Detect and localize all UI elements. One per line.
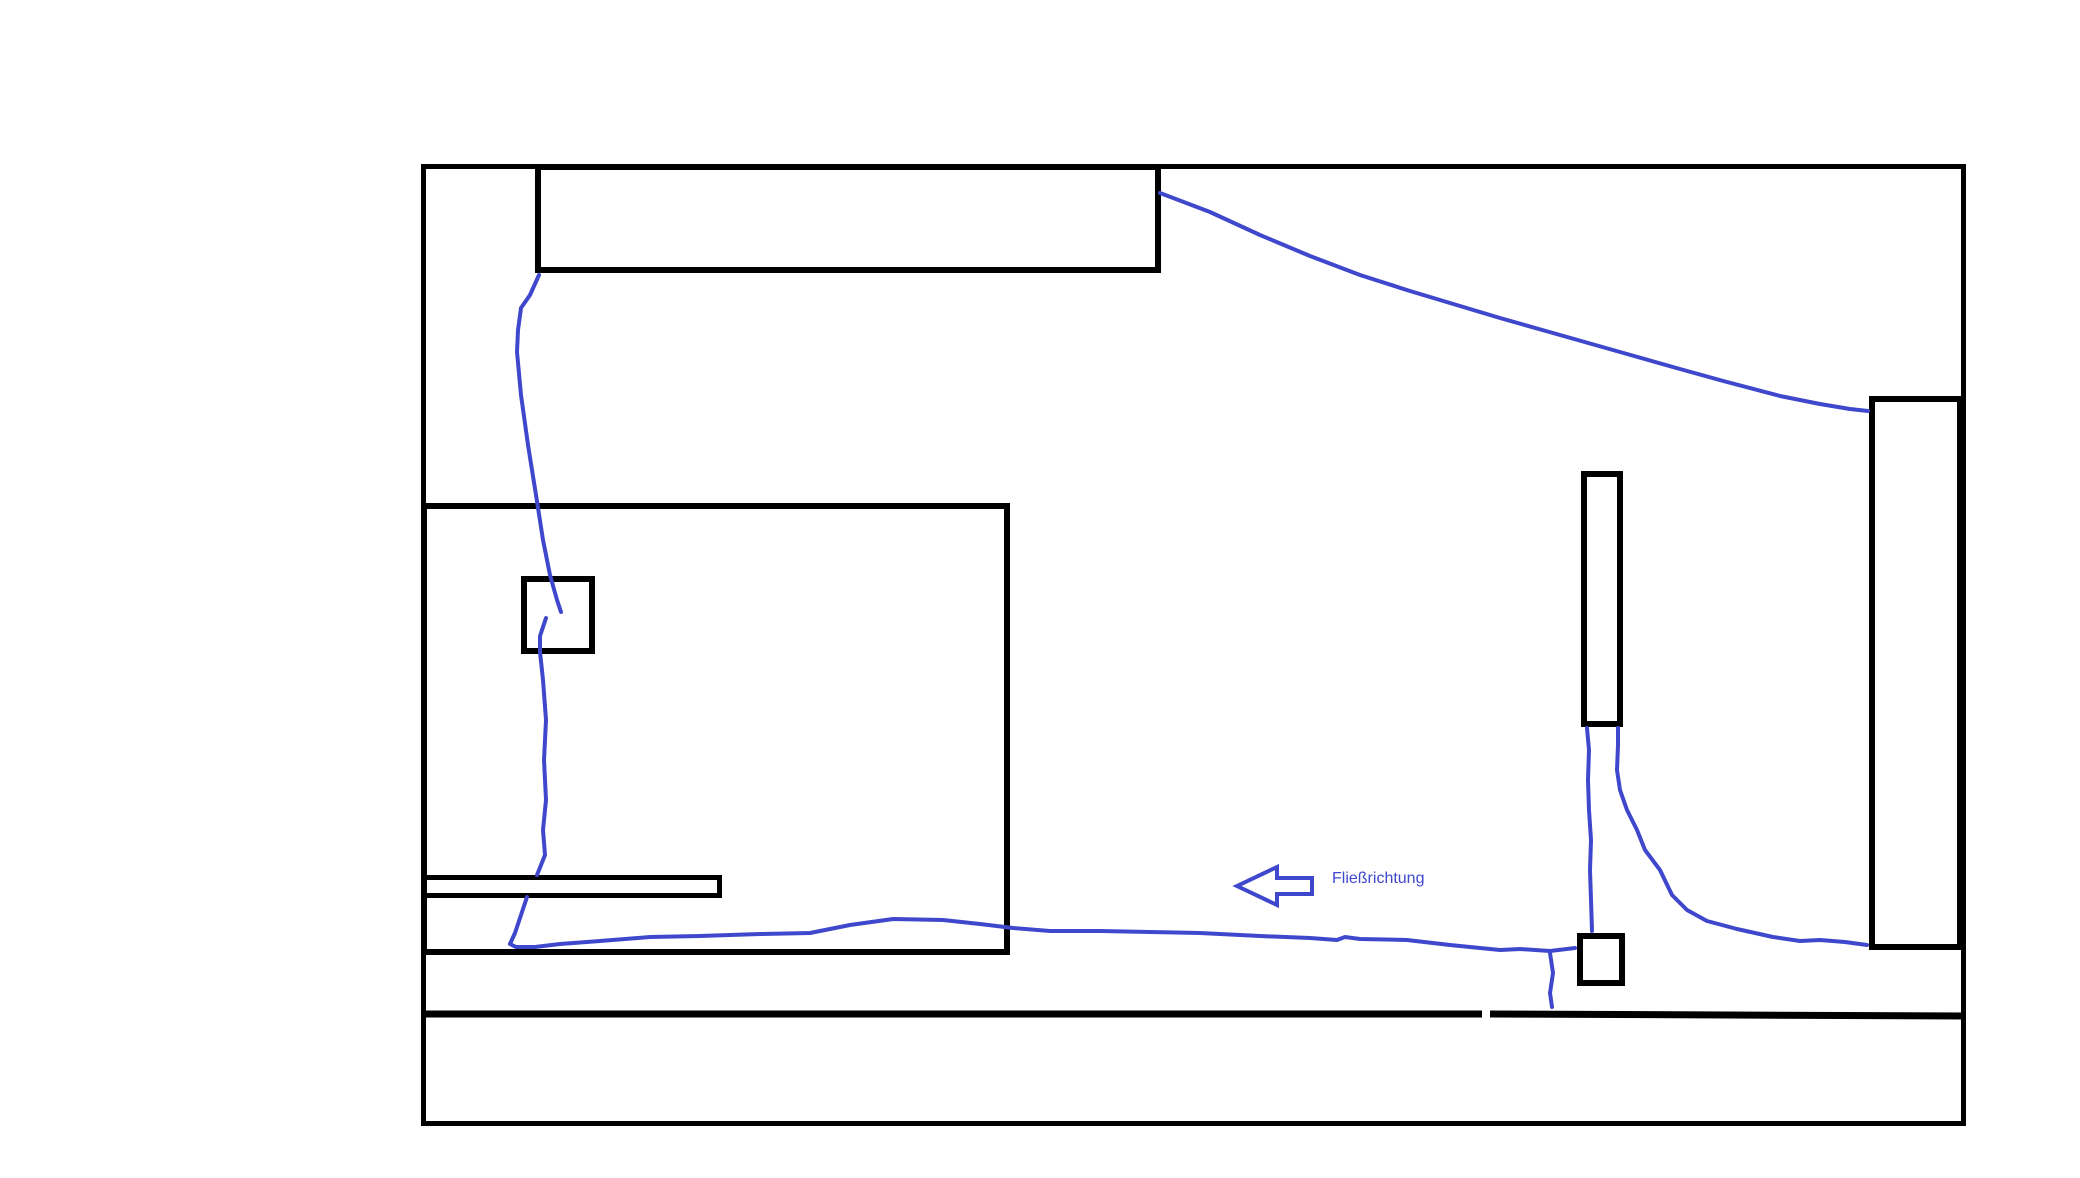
flow-direction-arrow <box>1237 867 1312 905</box>
flow-square-stub <box>537 618 546 875</box>
flow-direction-label: Fließrichtung <box>1332 871 1424 887</box>
flow-branch-down <box>1550 953 1553 1007</box>
flow-main-channel <box>510 897 1575 951</box>
middle-small-square <box>1580 936 1622 983</box>
left-shelf-bar <box>424 878 720 896</box>
outer-boundary <box>424 167 1964 1124</box>
left-inner-square <box>524 579 592 651</box>
lower-divider-right <box>1490 1014 1966 1016</box>
paint-canvas: Fließrichtung <box>0 0 2080 1178</box>
top-structure <box>538 167 1158 270</box>
flow-top-diagonal <box>1160 193 1868 411</box>
diagram-canvas <box>0 0 2080 1178</box>
flow-column-sweep-right <box>1617 728 1867 945</box>
right-structure <box>1872 399 1960 947</box>
flow-top-left-descent <box>517 275 561 612</box>
flow-column-to-square <box>1587 728 1592 931</box>
left-structure <box>424 506 1007 952</box>
middle-column <box>1584 474 1620 724</box>
